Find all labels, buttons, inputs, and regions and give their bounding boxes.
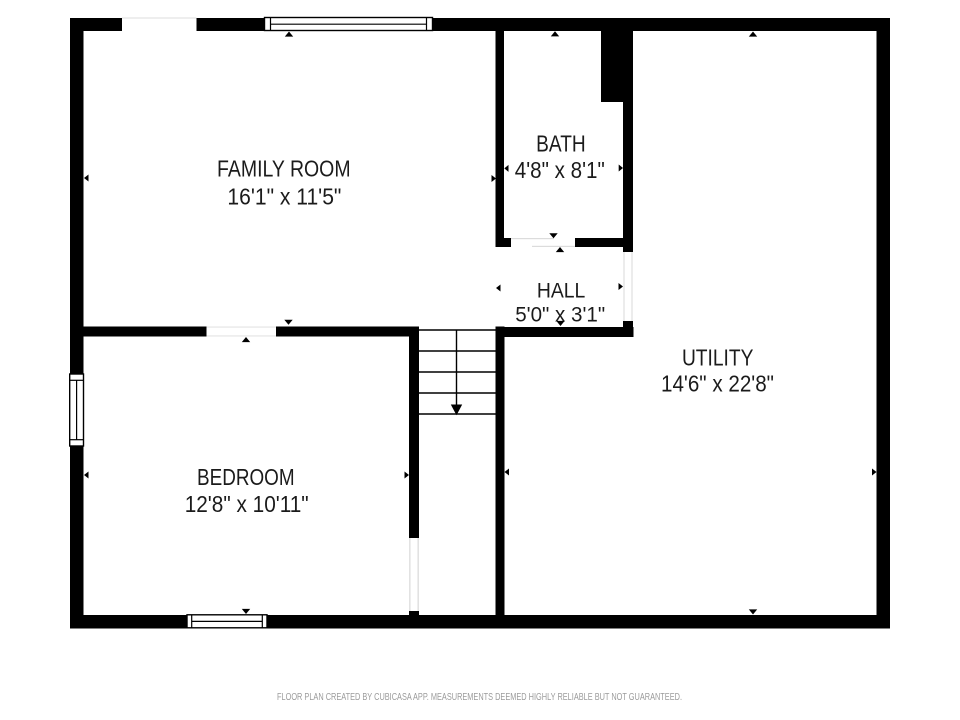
svg-text:UTILITY: UTILITY [682, 345, 754, 371]
svg-text:FLOOR PLAN CREATED BY CUBICASA: FLOOR PLAN CREATED BY CUBICASA APP. MEAS… [277, 692, 682, 703]
svg-text:16'1" x 11'5": 16'1" x 11'5" [227, 184, 341, 210]
svg-text:FAMILY ROOM: FAMILY ROOM [217, 156, 351, 182]
svg-text:4'8" x 8'1": 4'8" x 8'1" [515, 157, 605, 183]
svg-text:BATH: BATH [536, 131, 586, 157]
svg-text:BEDROOM: BEDROOM [197, 464, 295, 490]
svg-text:14'6" x 22'8": 14'6" x 22'8" [661, 371, 774, 397]
svg-text:HALL: HALL [537, 279, 586, 303]
svg-text:12'8" x 10'11": 12'8" x 10'11" [185, 491, 309, 517]
